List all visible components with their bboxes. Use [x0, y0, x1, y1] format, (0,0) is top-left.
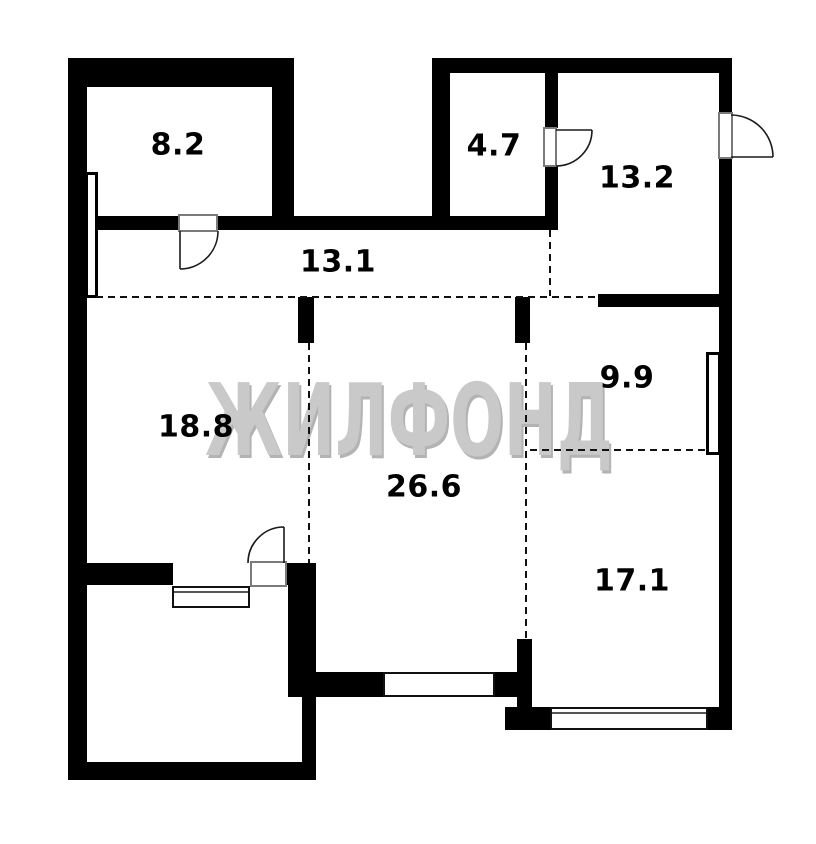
door-swing-layer [0, 0, 816, 844]
room-label-17-1: 17.1 [594, 564, 670, 599]
room-label-13-1: 13.1 [300, 245, 376, 280]
room-label-13-2: 13.2 [599, 161, 675, 196]
dashed-boundary-room-9-9-bottom [530, 449, 707, 451]
room-label-18-8: 18.8 [158, 410, 234, 445]
room-label-26-6: 26.6 [386, 470, 462, 505]
room-label-9-9: 9.9 [600, 361, 655, 396]
room-label-8-2: 8.2 [151, 128, 206, 163]
dashed-boundary-room-18-8-right [308, 343, 310, 563]
door-arc-entrance [731, 115, 773, 157]
dashed-boundary-room-13-2-left [549, 230, 551, 296]
room-label-4-7: 4.7 [467, 129, 522, 164]
door-arc-room-4-7 [556, 130, 592, 166]
dashed-boundary-corridor-bottom [96, 296, 598, 298]
floor-plan: ЖИЛФОНД ЖИЛФОНД [0, 0, 816, 844]
door-arc-room-8-2 [180, 231, 218, 269]
door-arc-room-18-8 [248, 527, 284, 563]
dashed-boundary-room-26-6-right [525, 343, 527, 639]
